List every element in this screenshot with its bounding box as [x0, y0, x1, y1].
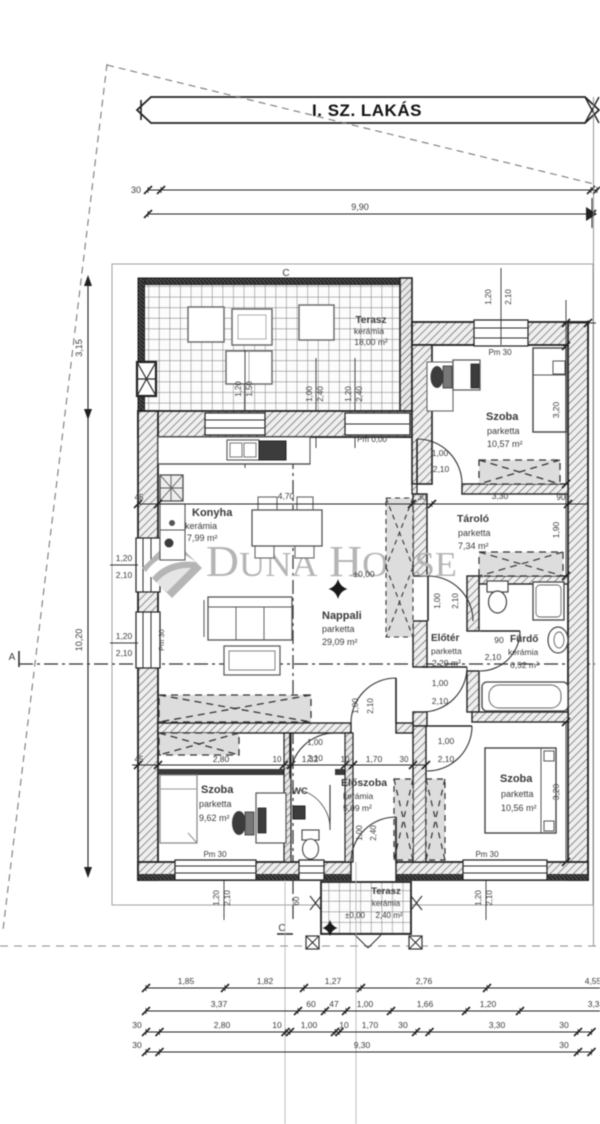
svg-text:1,20: 1,20	[344, 386, 353, 402]
svg-text:2,40: 2,40	[355, 386, 364, 402]
svg-text:1,27: 1,27	[325, 976, 342, 986]
svg-text:±0,00: ±0,00	[353, 569, 374, 579]
svg-text:10: 10	[273, 755, 282, 764]
svg-text:1,20: 1,20	[116, 553, 133, 563]
svg-text:1,82: 1,82	[257, 976, 274, 986]
svg-text:1,00: 1,00	[307, 738, 323, 747]
svg-text:parketta: parketta	[431, 646, 462, 656]
svg-text:1,50: 1,50	[245, 381, 254, 397]
svg-text:Fürdő: Fürdő	[510, 634, 538, 645]
svg-text:5,09 m²: 5,09 m²	[343, 803, 372, 813]
svg-text:60: 60	[292, 896, 301, 905]
svg-text:2,10: 2,10	[307, 754, 323, 763]
svg-text:2,40: 2,40	[316, 386, 325, 402]
svg-text:10: 10	[272, 1020, 282, 1030]
svg-text:kerámia: kerámia	[343, 791, 374, 801]
svg-text:2,10: 2,10	[223, 890, 232, 906]
svg-text:1,00: 1,00	[432, 678, 449, 688]
svg-text:2,10: 2,10	[116, 648, 133, 658]
svg-text:Szoba: Szoba	[201, 784, 234, 796]
svg-text:3,35: 3,35	[588, 999, 600, 1009]
svg-text:10,20: 10,20	[74, 629, 84, 652]
svg-text:3,20: 3,20	[551, 401, 561, 418]
svg-text:Szoba: Szoba	[500, 773, 533, 785]
svg-text:4,55: 4,55	[585, 976, 600, 986]
svg-text:29,09 m²: 29,09 m²	[322, 637, 358, 647]
svg-text:1,70: 1,70	[366, 754, 383, 764]
svg-text:30: 30	[132, 1040, 142, 1050]
svg-text:kerámia: kerámia	[354, 326, 385, 336]
svg-text:2,10: 2,10	[504, 289, 513, 305]
svg-text:30: 30	[559, 1020, 569, 1030]
svg-text:60: 60	[306, 999, 316, 1009]
svg-text:30: 30	[400, 755, 409, 764]
svg-text:3,30: 3,30	[492, 491, 509, 501]
svg-text:1,00: 1,00	[438, 736, 455, 746]
svg-text:30: 30	[132, 1020, 142, 1030]
svg-text:parketta: parketta	[199, 799, 232, 809]
svg-text:4,70: 4,70	[278, 491, 295, 501]
svg-text:Terasz: Terasz	[356, 315, 387, 326]
svg-text:Pm 30: Pm 30	[203, 850, 227, 859]
svg-text:18,00 m²: 18,00 m²	[354, 337, 388, 347]
svg-text:DUNA HOUSE: DUNA HOUSE	[206, 537, 457, 586]
svg-text:9,30: 9,30	[354, 1040, 371, 1050]
svg-text:1,00: 1,00	[351, 698, 360, 714]
svg-text:I. SZ. LAKÁS: I. SZ. LAKÁS	[312, 101, 422, 120]
svg-text:2,10: 2,10	[432, 696, 449, 706]
svg-text:kerámia: kerámia	[372, 899, 401, 908]
svg-text:90: 90	[557, 493, 566, 502]
svg-text:90: 90	[494, 635, 504, 645]
svg-text:3,15: 3,15	[74, 339, 84, 357]
svg-text:Pm 30: Pm 30	[488, 348, 512, 357]
svg-text:45: 45	[135, 493, 144, 502]
svg-text:parketta: parketta	[487, 426, 520, 436]
svg-text:Pm 0,00: Pm 0,00	[357, 435, 387, 444]
svg-text:Pm 30: Pm 30	[157, 629, 166, 651]
svg-text:1,20: 1,20	[212, 890, 221, 906]
svg-text:2,10: 2,10	[433, 464, 450, 474]
svg-text:1,20: 1,20	[234, 381, 243, 397]
svg-text:2,10: 2,10	[366, 698, 375, 714]
svg-text:Nappali: Nappali	[322, 610, 362, 622]
svg-text:45: 45	[135, 755, 144, 764]
svg-text:3,20: 3,20	[551, 783, 561, 800]
svg-text:1,90: 1,90	[551, 521, 561, 538]
svg-text:9,90: 9,90	[351, 202, 369, 212]
svg-text:30: 30	[131, 185, 141, 195]
svg-text:10,56 m²: 10,56 m²	[501, 803, 537, 813]
svg-text:kerámia: kerámia	[185, 521, 217, 531]
svg-text:A: A	[9, 652, 16, 663]
svg-text:1,00: 1,00	[433, 593, 442, 609]
svg-text:parketta: parketta	[322, 624, 355, 634]
svg-text:2,10: 2,10	[116, 570, 133, 580]
svg-text:1,66: 1,66	[417, 999, 434, 1009]
svg-text:30: 30	[398, 1020, 408, 1030]
svg-text:±0,00: ±0,00	[345, 911, 366, 920]
svg-text:1,20: 1,20	[474, 890, 483, 906]
svg-text:kerámia: kerámia	[508, 647, 539, 657]
svg-text:1,00: 1,00	[432, 448, 449, 458]
svg-text:1,20: 1,20	[480, 999, 497, 1009]
svg-text:parketta: parketta	[501, 789, 534, 799]
svg-text:30: 30	[559, 1040, 569, 1050]
svg-text:47: 47	[329, 999, 339, 1009]
svg-text:7,34 m²: 7,34 m²	[458, 541, 489, 551]
svg-text:Tároló: Tároló	[457, 513, 489, 525]
svg-text:2,10: 2,10	[485, 890, 494, 906]
svg-text:C: C	[278, 923, 285, 934]
svg-text:Pm 30: Pm 30	[475, 850, 499, 859]
svg-text:1,85: 1,85	[178, 976, 195, 986]
svg-text:C: C	[282, 268, 289, 279]
svg-text:2,76: 2,76	[416, 976, 433, 986]
svg-text:9,62 m²: 9,62 m²	[199, 813, 230, 823]
svg-text:1,00: 1,00	[301, 1020, 318, 1030]
svg-text:30: 30	[418, 493, 427, 502]
svg-text:Terasz: Terasz	[371, 886, 401, 897]
svg-text:parketta: parketta	[458, 528, 491, 538]
svg-text:1,20: 1,20	[116, 631, 133, 641]
svg-text:3,30: 3,30	[489, 1020, 506, 1030]
svg-text:Előtér: Előtér	[431, 633, 459, 644]
svg-text:2,40 m²: 2,40 m²	[375, 911, 402, 920]
svg-text:1,00: 1,00	[305, 386, 314, 402]
svg-text:1,20: 1,20	[484, 289, 493, 305]
svg-text:3,37: 3,37	[211, 999, 228, 1009]
svg-text:2,10: 2,10	[485, 652, 502, 662]
svg-text:10: 10	[339, 1020, 349, 1030]
svg-text:2,80: 2,80	[214, 1020, 231, 1030]
svg-text:1,00: 1,00	[355, 825, 364, 841]
svg-text:2,40: 2,40	[369, 825, 378, 841]
svg-text:Konyha: Konyha	[192, 507, 233, 519]
svg-text:7,99 m²: 7,99 m²	[187, 533, 218, 543]
svg-text:2,80: 2,80	[213, 754, 230, 764]
svg-text:2,10: 2,10	[451, 593, 460, 609]
svg-text:Szoba: Szoba	[486, 411, 519, 423]
svg-text:1,70: 1,70	[362, 1020, 379, 1030]
svg-text:2,10: 2,10	[438, 754, 455, 764]
svg-text:10: 10	[341, 755, 350, 764]
svg-text:1,00: 1,00	[357, 999, 374, 1009]
svg-text:10,57 m²: 10,57 m²	[487, 439, 523, 449]
svg-text:Előszoba: Előszoba	[341, 777, 387, 789]
svg-text:6,52 m²: 6,52 m²	[510, 660, 539, 670]
